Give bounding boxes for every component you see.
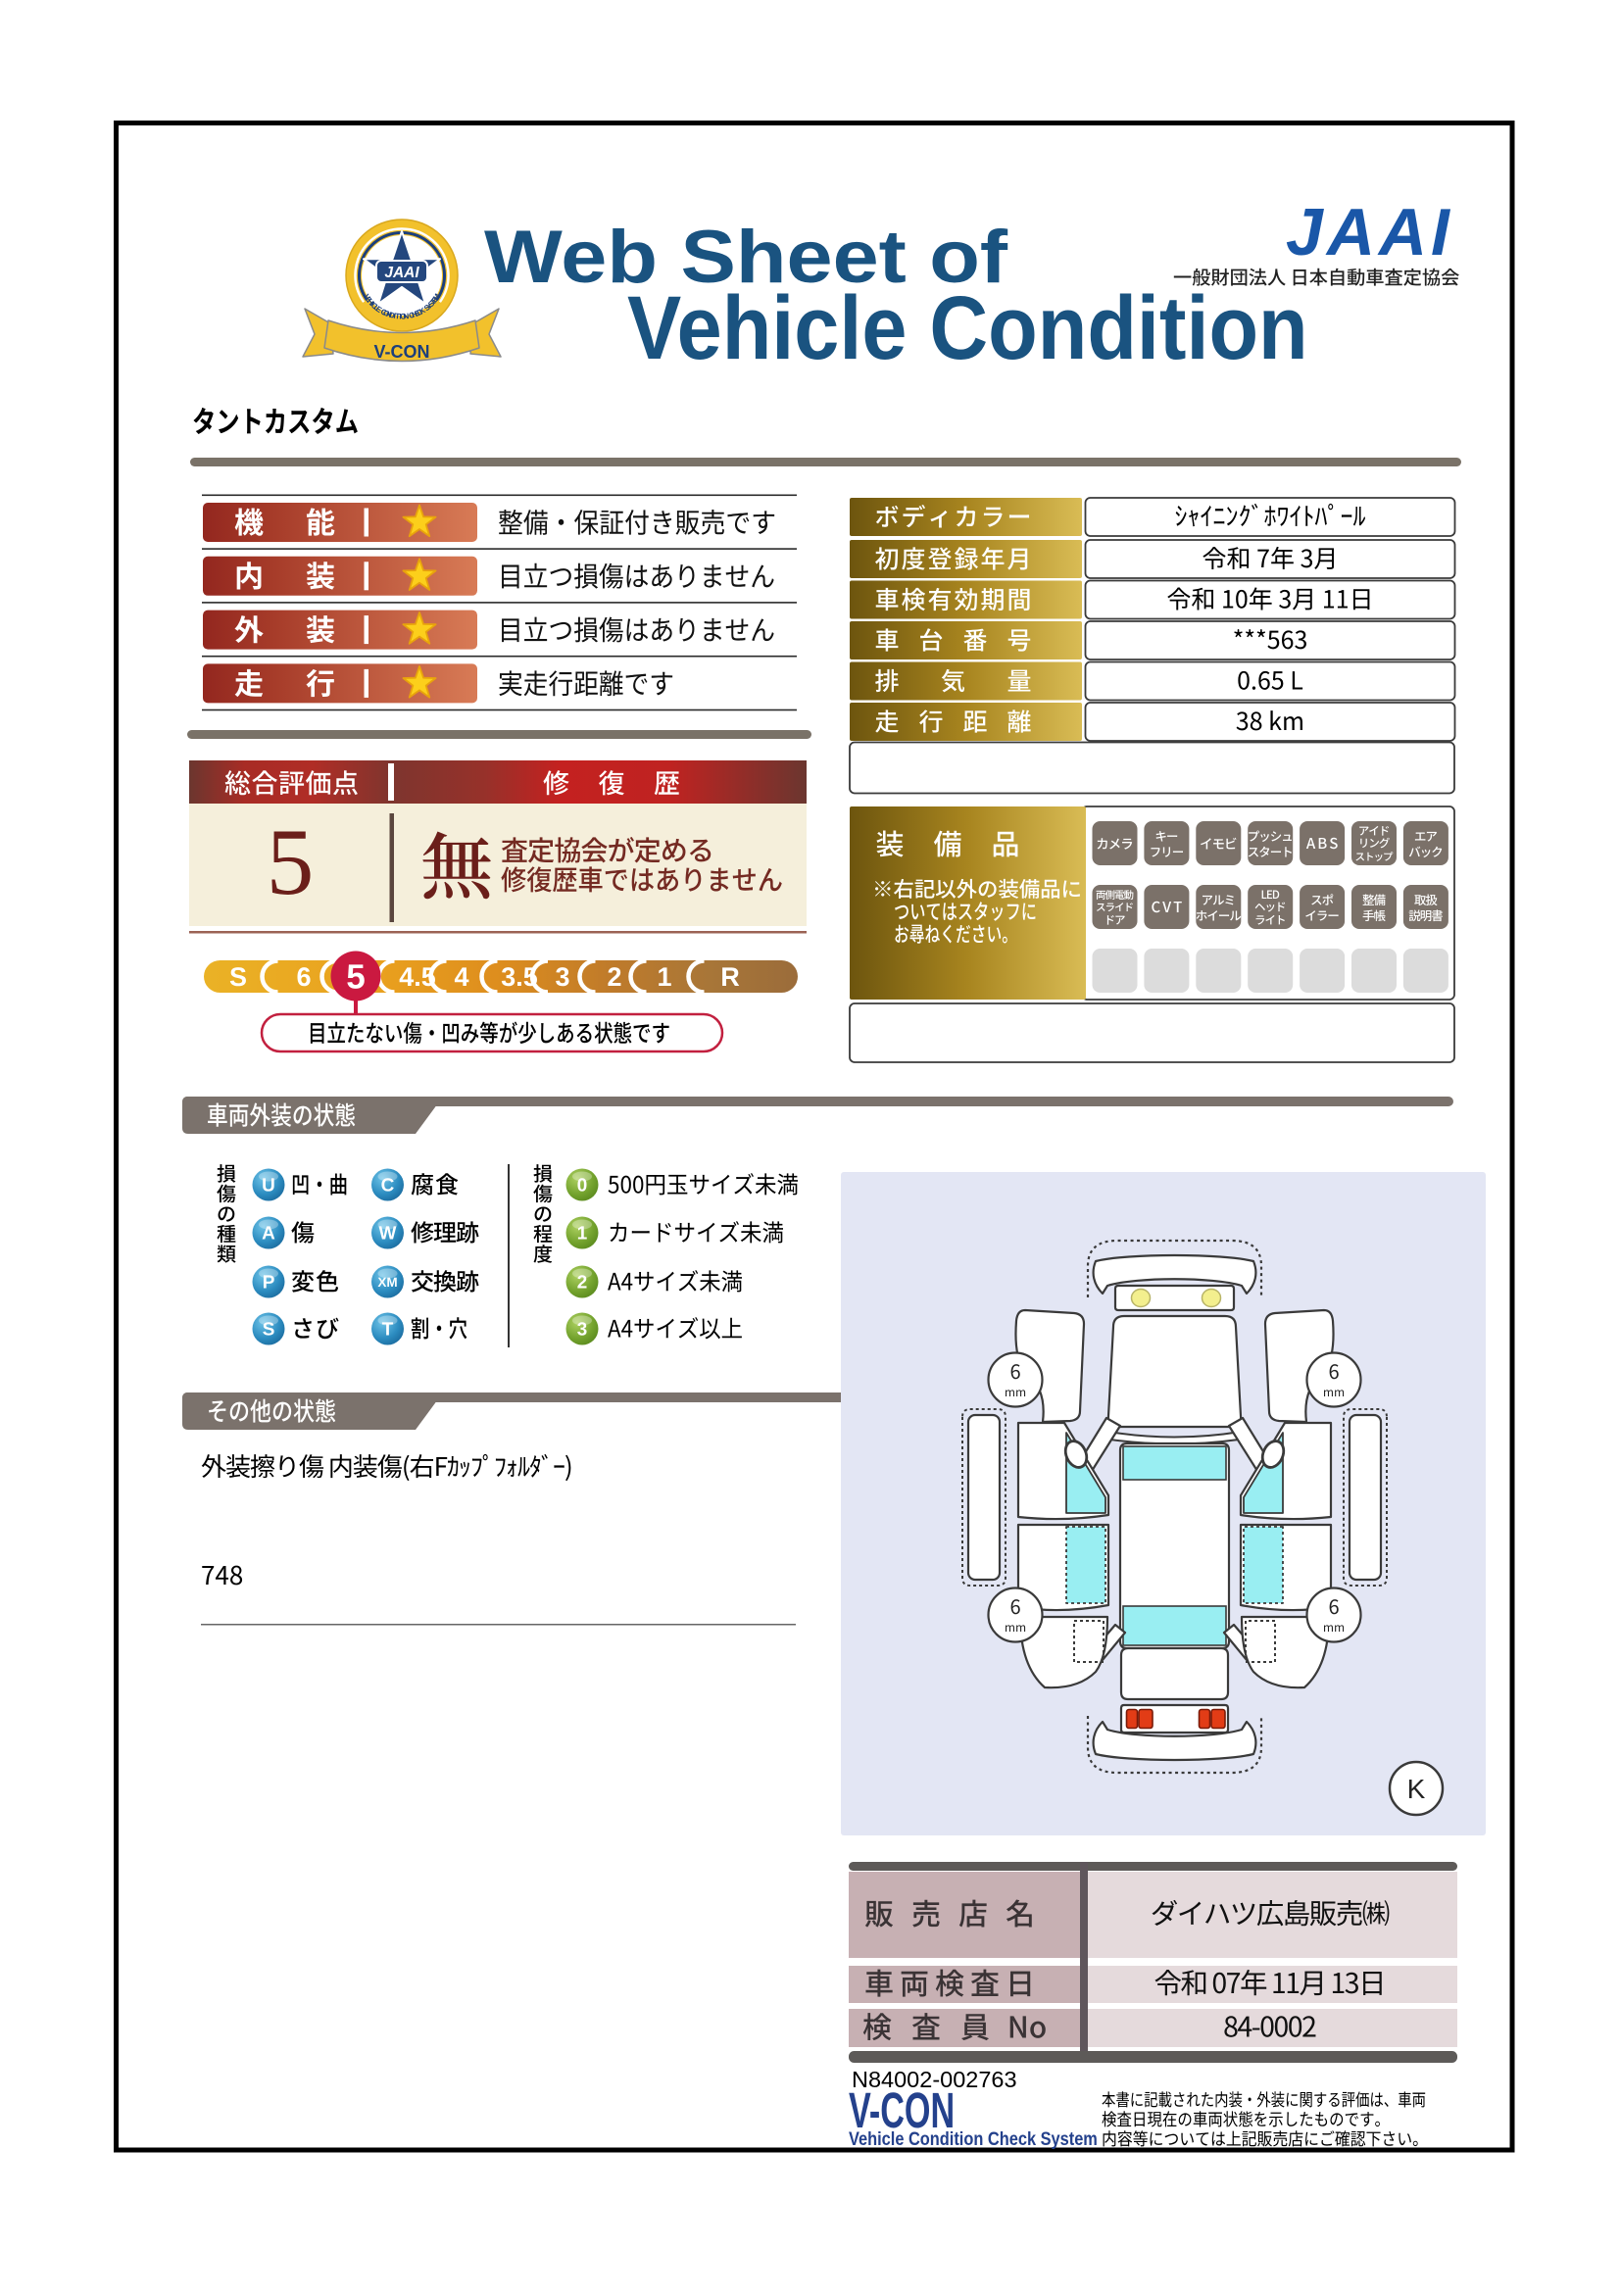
svg-text:JAAI: JAAI	[1286, 195, 1453, 269]
svg-text:K: K	[1407, 1774, 1426, 1804]
svg-text:Vehicle Condition Check System: Vehicle Condition Check System	[849, 2128, 1098, 2150]
svg-text:JAAI: JAAI	[384, 265, 419, 281]
svg-text:V-CON: V-CON	[373, 342, 429, 362]
svg-text:Vehicle Condition: Vehicle Condition	[627, 277, 1308, 378]
